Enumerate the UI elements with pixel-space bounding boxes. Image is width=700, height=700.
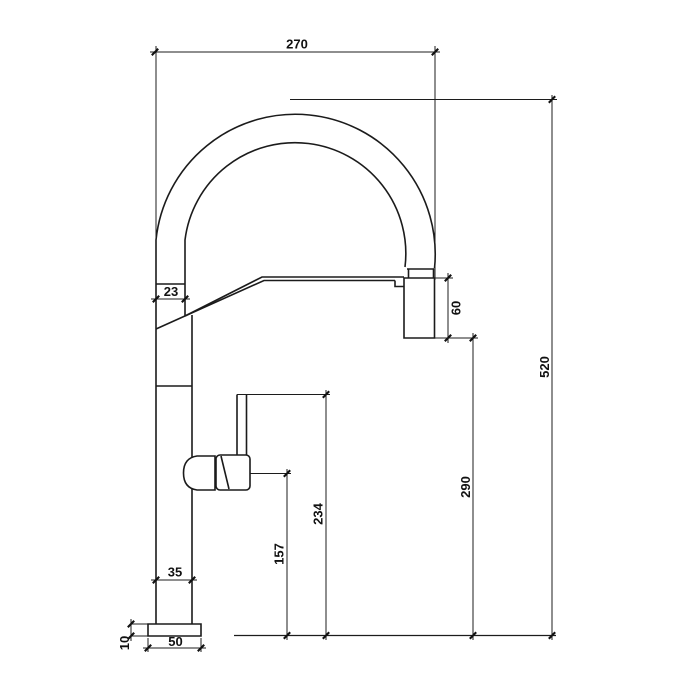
dim-label-spout-tube-width: 23 (164, 284, 178, 299)
dim-label-base-plate-height: 10 (117, 636, 132, 650)
spout-outer-arc (156, 114, 435, 332)
handle-body (216, 455, 250, 490)
dimension-spout-tube-width: 23 (151, 284, 190, 302)
dim-label-base-width: 50 (168, 634, 182, 649)
dimension-body-width: 35 (151, 565, 197, 584)
dim-label-handle-top-height: 234 (311, 502, 326, 524)
dock-notch (395, 281, 404, 287)
dim-label-overall-height: 520 (537, 356, 552, 378)
dimension-handle-top-height: 234 (237, 390, 330, 640)
dim-label-body-width: 35 (168, 565, 182, 580)
faucet-outline (148, 114, 435, 636)
faucet-technical-drawing: 270 23 60 520 (0, 0, 700, 700)
dimension-spray-head-height: 60 (435, 273, 464, 343)
dim-label-handle-pivot-height: 157 (272, 543, 287, 565)
dimension-base-plate-height: 10 (117, 619, 148, 650)
handle-stem (237, 395, 247, 456)
spout-inner-arc (185, 143, 406, 316)
dim-label-spray-head-height: 60 (449, 301, 464, 315)
handle-cap (184, 456, 216, 490)
dim-label-outlet-height: 290 (458, 476, 473, 498)
dim-label-spout-reach: 270 (286, 37, 308, 52)
spray-head-neck (409, 269, 434, 278)
dimension-handle-pivot-height: 157 (250, 469, 291, 640)
spray-head (404, 278, 435, 338)
dimension-outlet-height: 290 (435, 333, 479, 640)
dock-arm-upper-line (185, 277, 404, 316)
dimension-overall-height: 520 (290, 95, 557, 640)
technical-drawing-canvas: 270 23 60 520 (0, 0, 700, 700)
